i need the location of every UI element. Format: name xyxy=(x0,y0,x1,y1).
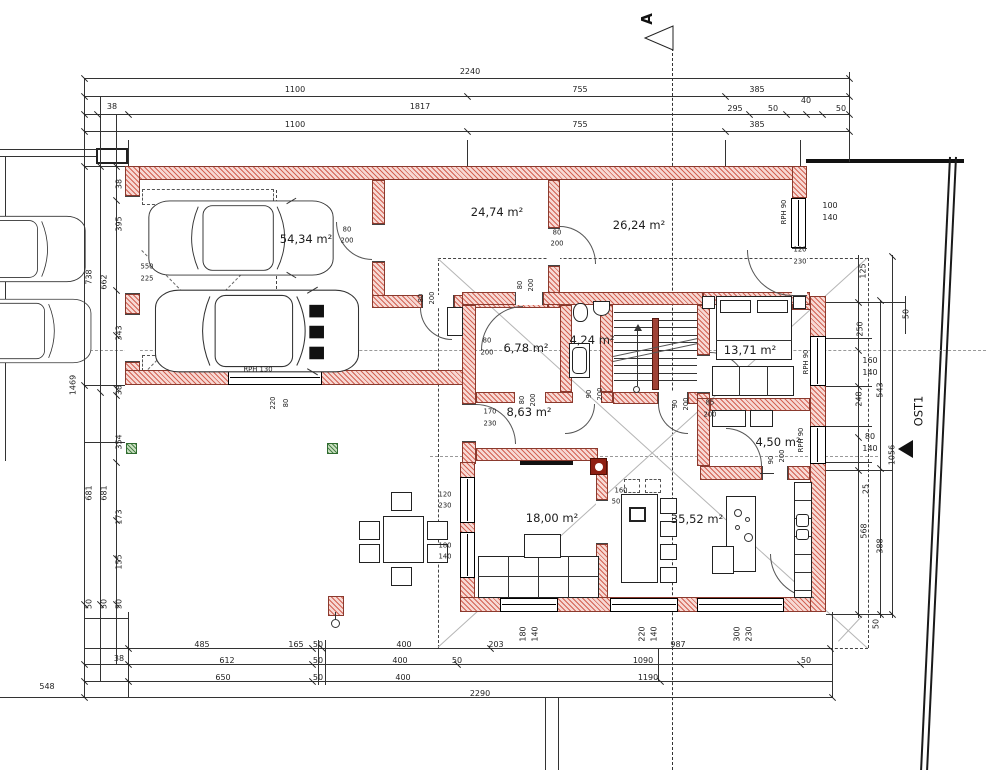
dimension-label: 385 xyxy=(749,120,764,129)
coffee-table xyxy=(524,534,561,558)
burner xyxy=(745,517,750,522)
dimension-label: 1190 xyxy=(638,673,658,682)
wall xyxy=(613,392,658,404)
dimension-label: 248 xyxy=(855,391,864,406)
window xyxy=(460,477,475,523)
kitchen-counter xyxy=(794,482,812,598)
room-area-label: 13,71 m² xyxy=(724,343,776,357)
stair-tread xyxy=(614,312,697,313)
dimension-label: 230 xyxy=(745,626,754,641)
downpipe-symbol xyxy=(331,619,340,628)
dimension-line xyxy=(100,96,101,681)
dimension-line xyxy=(826,302,905,303)
dimension-label: 343 xyxy=(115,325,124,340)
annotation-label: 80 xyxy=(516,281,524,290)
dimension-label: 220 xyxy=(638,626,647,641)
door-arc xyxy=(560,226,596,264)
dimension-label: 180 xyxy=(519,626,528,641)
annotation-label: 90 xyxy=(585,390,593,399)
wall xyxy=(697,398,710,466)
dimension-label: 165 xyxy=(288,640,303,649)
annotation-label: 550 xyxy=(141,263,154,271)
section-marker-triangle-icon xyxy=(642,24,676,52)
dimension-label: 160 xyxy=(862,356,877,365)
dimension-label: 1469 xyxy=(69,375,78,395)
kitchen-sink xyxy=(796,514,809,527)
nightstand xyxy=(793,296,806,309)
garage-door-opening xyxy=(125,314,140,362)
door-opening xyxy=(697,355,710,393)
dimension-label: 1100 xyxy=(285,120,305,129)
post xyxy=(327,443,338,454)
wall xyxy=(462,292,517,305)
dimension-line xyxy=(84,697,832,698)
annotation-label: RPH 90 xyxy=(802,350,810,375)
dimension-label: 173 xyxy=(115,509,124,524)
annotation-label: 200 xyxy=(704,411,717,419)
room-area-label: 8,63 m² xyxy=(506,405,551,419)
orientation-marker-label: OST1 xyxy=(911,396,925,427)
annotation-label: 200 xyxy=(527,279,535,292)
dimension-label: 568 xyxy=(860,523,869,538)
dimension-line xyxy=(880,300,881,618)
door-arc xyxy=(747,250,792,296)
annotation-label: 50 xyxy=(612,498,621,506)
door-opening xyxy=(515,292,543,305)
dimension-label: 388 xyxy=(876,538,885,553)
entrance-door-opening xyxy=(462,404,476,442)
annotation-label: 230 xyxy=(439,502,452,510)
dimension-label: 1090 xyxy=(633,656,653,665)
annotation-label: 180 xyxy=(439,542,452,550)
door-swing-arrow xyxy=(760,473,774,474)
wall xyxy=(600,305,613,392)
nightstand xyxy=(702,296,715,309)
annotation-label: 80 xyxy=(417,294,425,303)
annotation-label: 200 xyxy=(778,450,786,463)
site-boundary-line xyxy=(920,157,951,770)
annotation-label: 230 xyxy=(484,420,497,428)
wall xyxy=(697,305,710,355)
dimension-label: 1817 xyxy=(410,102,430,111)
room-area-label: 24,74 m² xyxy=(471,205,523,219)
wall xyxy=(125,166,140,196)
annotation-label: 80 xyxy=(282,399,290,408)
room-area-label: 4,50 m² xyxy=(755,435,800,449)
dimension-label: 140 xyxy=(822,213,837,222)
toilet xyxy=(593,301,610,316)
wall xyxy=(476,392,515,403)
dimension-label: 295 xyxy=(727,104,742,113)
window xyxy=(460,532,475,578)
chair xyxy=(427,521,448,540)
door-opening xyxy=(792,248,807,296)
downpipe-line xyxy=(335,612,336,620)
dimension-label: 400 xyxy=(396,640,411,649)
bathtub-inner xyxy=(572,347,587,374)
wall xyxy=(788,466,810,480)
dimension-label: 50 xyxy=(836,104,846,113)
dimension-label: 50 xyxy=(85,599,94,609)
garage-door-opening xyxy=(125,196,140,294)
annotation-label: 80 xyxy=(483,337,492,345)
window xyxy=(697,598,784,612)
annotation-label: RPH 130 xyxy=(243,366,272,374)
dimension-line xyxy=(545,697,546,770)
dimension-label: 38 xyxy=(114,654,124,663)
wall xyxy=(792,166,807,198)
room-area-label: 54,34 m² xyxy=(280,232,332,246)
window-rph90 xyxy=(791,198,806,248)
dimension-label: 395 xyxy=(115,216,124,231)
dimension-label: 125 xyxy=(859,263,868,278)
pillow xyxy=(757,300,788,313)
stair-start-circle xyxy=(633,386,640,393)
cabinet xyxy=(750,410,773,427)
dimension-label: 612 xyxy=(219,656,234,665)
dimension-line xyxy=(826,462,872,463)
dimension-label: 50 xyxy=(100,599,109,609)
annotation-label: 230 xyxy=(794,258,807,266)
wardrobe-divider xyxy=(739,366,740,396)
chair xyxy=(391,567,412,586)
burner xyxy=(735,525,740,530)
dimension-line xyxy=(84,114,850,115)
wall xyxy=(372,295,422,308)
bed-line xyxy=(716,340,792,341)
dimension-label: 2290 xyxy=(470,689,490,698)
room-area-label: 18,00 m² xyxy=(526,511,578,525)
wardrobe xyxy=(712,366,794,396)
wall xyxy=(548,180,560,228)
wall xyxy=(545,392,573,403)
annotation-label: 200 xyxy=(341,237,354,245)
dimension-label: 650 xyxy=(215,673,230,682)
chair xyxy=(660,567,677,583)
dimension-label: 1056 xyxy=(888,445,897,465)
stair-arrow-head xyxy=(634,324,642,331)
dimension-line xyxy=(800,140,801,166)
site-boundary-line xyxy=(926,157,957,770)
annotation-label: 160 xyxy=(615,487,628,495)
dimension-label: 300 xyxy=(733,626,742,641)
dimension-line xyxy=(725,140,726,166)
street-line xyxy=(0,156,96,157)
dimension-label: 250 xyxy=(856,321,865,336)
dimension-label: 1100 xyxy=(285,85,305,94)
kitchen-cabinet xyxy=(712,546,734,574)
dimension-line xyxy=(84,681,832,682)
burner xyxy=(734,509,742,517)
dimension-label: 385 xyxy=(749,85,764,94)
dimension-line xyxy=(128,140,129,166)
dimension-label: 38 xyxy=(115,179,124,189)
room-area-label: 26,24 m² xyxy=(613,218,665,232)
dimension-line xyxy=(826,426,872,427)
dimension-label: 485 xyxy=(194,640,209,649)
cabinet xyxy=(447,307,463,336)
annotation-label: 225 xyxy=(141,275,154,283)
dimension-label: 2240 xyxy=(460,67,480,76)
annotation-label: 90 xyxy=(767,456,775,465)
post xyxy=(126,443,137,454)
dimension-line xyxy=(467,140,468,166)
dimension-line xyxy=(0,697,84,698)
dimension-label: 755 xyxy=(572,120,587,129)
dimension-label: 155 xyxy=(115,554,124,569)
pillow xyxy=(720,300,751,313)
dimension-label: 203 xyxy=(488,640,503,649)
dimension-line xyxy=(325,640,326,685)
dimension-label: 400 xyxy=(395,673,410,682)
annotation-label: 200 xyxy=(682,398,690,411)
sideboard xyxy=(520,461,573,465)
room-area-label: 6,78 m² xyxy=(503,341,548,355)
window xyxy=(500,598,558,612)
terrace-table xyxy=(383,516,424,563)
annotation-label: 90 xyxy=(671,400,679,409)
dimension-label: 50 xyxy=(313,640,323,649)
wall xyxy=(462,442,476,464)
dimension-label: 140 xyxy=(862,444,877,453)
dimension-label: 50 xyxy=(313,656,323,665)
dimension-line xyxy=(84,166,125,167)
annotation-label: 80 xyxy=(553,229,562,237)
street-line xyxy=(0,149,96,150)
annotation-label: 200 xyxy=(551,240,564,248)
room-area-label: 4,24 m² xyxy=(569,333,614,347)
dimension-label: 38 xyxy=(107,102,117,111)
dimension-label: 681 xyxy=(85,485,94,500)
dimension-label: 140 xyxy=(531,626,540,641)
terrace-post xyxy=(328,596,344,616)
sofa-line xyxy=(508,556,509,598)
dimension-label: 50 xyxy=(872,619,881,629)
window-rph90 xyxy=(810,426,826,464)
table-item xyxy=(629,507,646,522)
retaining-wall-line xyxy=(806,159,964,163)
washbasin xyxy=(573,303,588,322)
dimension-label: 354 xyxy=(115,434,124,449)
window xyxy=(610,598,678,612)
dimension-label: 987 xyxy=(670,640,685,649)
dimension-line xyxy=(892,255,893,618)
dimension-label: 25 xyxy=(862,484,871,494)
wall xyxy=(372,262,385,296)
chair xyxy=(391,492,412,511)
door-opening xyxy=(372,224,385,262)
dimension-label: 40 xyxy=(801,96,811,105)
chair xyxy=(660,544,677,560)
dimension-label: 548 xyxy=(39,682,54,691)
dimension-label: 80 xyxy=(865,432,875,441)
door-opening xyxy=(596,500,608,544)
annotation-label: 85 xyxy=(706,399,715,407)
dimension-label: 662 xyxy=(100,274,109,289)
dimension-line xyxy=(826,386,872,387)
annotation-label: 200 xyxy=(596,388,604,401)
dimension-line xyxy=(128,612,129,698)
dimension-line xyxy=(558,697,559,770)
annotation-label: 140 xyxy=(439,553,452,561)
annotation-label: 120 xyxy=(794,246,807,254)
kitchen-sink xyxy=(796,529,809,540)
wall xyxy=(125,294,140,314)
dimension-label: 140 xyxy=(862,368,877,377)
dimension-label: 50 xyxy=(115,599,124,609)
stair-arrow-line xyxy=(637,330,638,386)
annotation-label: 170 xyxy=(484,408,497,416)
dimension-label: 100 xyxy=(822,201,837,210)
dimension-label: 50 xyxy=(768,104,778,113)
annotation-label: 80 xyxy=(518,396,526,405)
room-area-label: 35,52 m² xyxy=(671,512,723,526)
wall xyxy=(700,466,762,480)
burner xyxy=(744,533,753,542)
dimension-line xyxy=(832,612,833,698)
wall xyxy=(125,166,807,180)
dimension-label: 50 xyxy=(801,656,811,665)
car-icon xyxy=(0,296,110,366)
annotation-label: 200 xyxy=(481,349,494,357)
annotation-label: RPH 90 xyxy=(780,200,788,225)
dimension-label: 755 xyxy=(572,85,587,94)
wall xyxy=(372,180,385,224)
wardrobe-divider xyxy=(767,366,768,396)
chair-dashed xyxy=(645,479,661,493)
annotation-label: 200 xyxy=(428,292,436,305)
window-rph90 xyxy=(810,336,826,386)
dimension-line xyxy=(826,338,872,339)
stair-stringer xyxy=(652,318,659,390)
dimension-label: 400 xyxy=(392,656,407,665)
corner-leader-line xyxy=(838,615,863,641)
dimension-line xyxy=(849,72,850,162)
cabinet xyxy=(712,410,746,427)
chair xyxy=(359,544,380,563)
wall xyxy=(543,292,703,305)
wall xyxy=(462,305,476,404)
annotation-label: 80 xyxy=(343,226,352,234)
dimension-label: 50 xyxy=(902,309,911,319)
dimension-label: 50 xyxy=(313,673,323,682)
sofa-line xyxy=(538,556,539,598)
dimension-label: 38 xyxy=(115,385,124,395)
sofa-line xyxy=(568,556,569,598)
chimney xyxy=(590,458,607,475)
floor-plan: A xyxy=(0,0,986,770)
door-arc xyxy=(565,404,595,434)
car-icon xyxy=(148,286,366,376)
annotation-label: 120 xyxy=(439,491,452,499)
dimension-label: 543 xyxy=(876,382,885,397)
dimension-label: 681 xyxy=(100,485,109,500)
dimension-label: 738 xyxy=(85,269,94,284)
orientation-marker-triangle-icon xyxy=(898,440,913,458)
dimension-line xyxy=(84,618,128,619)
dimension-line xyxy=(84,78,850,79)
chair xyxy=(359,521,380,540)
dimension-label: 140 xyxy=(650,626,659,641)
sofa-line xyxy=(478,576,599,577)
dimension-label: 50 xyxy=(452,656,462,665)
wall xyxy=(476,448,598,461)
annotation-label: 220 xyxy=(269,397,277,410)
